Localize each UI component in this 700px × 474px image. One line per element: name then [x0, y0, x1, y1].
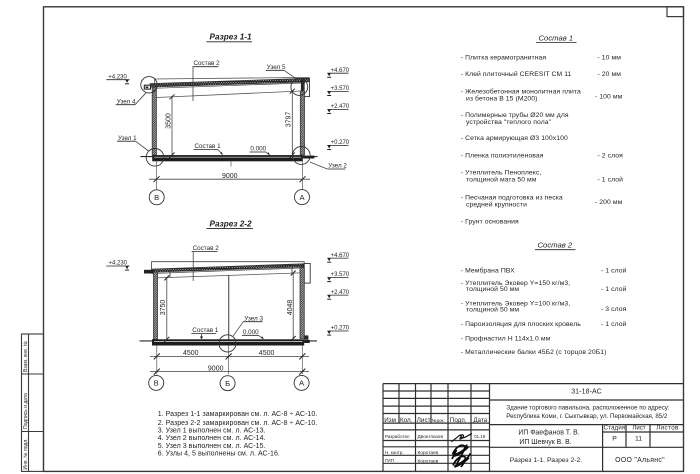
svg-text:- Плитка керамогранитная: - Плитка керамогранитная [461, 54, 547, 61]
svg-text:Изм: Изм [384, 417, 396, 424]
svg-text:толщиной 50 мм: толщиной 50 мм [466, 305, 519, 313]
svg-text:- 100 мм: - 100 мм [595, 94, 623, 101]
svg-text:0.000: 0.000 [250, 146, 266, 153]
svg-text:9000: 9000 [208, 365, 224, 372]
svg-text:4. Узел 2 выполнен см. л. АС-1: 4. Узел 2 выполнен см. л. АС-14. [158, 435, 266, 442]
svg-text:1. Разрез 1-1 замаркирован см.: 1. Разрез 1-1 замаркирован см. л. АС-8 ÷… [158, 411, 318, 418]
svg-text:- Профнастил Н 114x1.0 мм: - Профнастил Н 114x1.0 мм [461, 336, 551, 343]
svg-text:Кол.: Кол. [400, 417, 413, 424]
svg-text:- Металлические балки 45Б2 (с: - Металлические балки 45Б2 (с торцов 20Б… [461, 348, 607, 356]
svg-text:В: В [154, 193, 159, 202]
svg-text:9000: 9000 [222, 173, 238, 180]
svg-text:Двоеглазов: Двоеглазов [418, 434, 444, 440]
svg-text:устройства "теплого пола": устройства "теплого пола" [466, 118, 552, 126]
svg-text:Стадия: Стадия [604, 426, 626, 432]
svg-text:Состав 1: Состав 1 [539, 34, 574, 43]
svg-text:толщиной 50 мм: толщиной 50 мм [466, 285, 519, 293]
svg-text:- Полимерные трубы Ø20 мм для: - Полимерные трубы Ø20 мм для [461, 111, 569, 119]
svg-text:Здание торгового павильона, ра: Здание торгового павильона, расположенно… [506, 405, 669, 412]
svg-text:- 1 слой: - 1 слой [601, 285, 627, 293]
svg-text:Коротаев: Коротаев [418, 458, 439, 464]
svg-text:0.000: 0.000 [243, 329, 259, 336]
svg-text:средней крупности: средней крупности [466, 200, 527, 208]
svg-text:Республика Коми, г. Сыктывкар,: Республика Коми, г. Сыктывкар, ул. Перво… [506, 413, 668, 420]
svg-text:толщиной мата 50 мм: толщиной мата 50 мм [466, 176, 537, 184]
svg-text:ИП Шевчук В. В.: ИП Шевчук В. В. [519, 439, 571, 446]
svg-text:- 3 слоя: - 3 слоя [601, 306, 627, 313]
svg-text:Подпись и дата: Подпись и дата [23, 393, 29, 429]
svg-text:- Клей плиточный CERESIT CM 11: - Клей плиточный CERESIT CM 11 [461, 70, 572, 78]
svg-text:Состав 2: Состав 2 [193, 245, 220, 252]
svg-text:Узел 3: Узел 3 [244, 315, 263, 322]
svg-text:Дата: Дата [473, 417, 487, 424]
svg-text:- Грунт основания: - Грунт основания [461, 219, 519, 226]
svg-text:Подп.: Подп. [450, 417, 467, 424]
svg-text:- Утеплитель Пеноплекс,: - Утеплитель Пеноплекс, [461, 170, 542, 177]
svg-text:Состав 1: Состав 1 [195, 143, 222, 150]
svg-text:Листов: Листов [656, 424, 679, 431]
svg-text:- Железобетонная монолитная п: - Железобетонная монолитная плита [461, 88, 581, 96]
svg-text:Б: Б [225, 379, 230, 388]
svg-text:Лист: Лист [417, 417, 431, 424]
svg-text:- Мембрана ПВХ: - Мембрана ПВХ [461, 266, 515, 274]
svg-text:- Пленка полиэтиленовая: - Пленка полиэтиленовая [461, 152, 544, 159]
svg-text:3500: 3500 [165, 113, 172, 129]
svg-text:- 10 мм: - 10 мм [598, 54, 622, 61]
svg-text:- 20 мм: - 20 мм [598, 71, 622, 78]
svg-text:4048: 4048 [287, 300, 294, 316]
svg-text:ООО "Альянс": ООО "Альянс" [615, 457, 665, 464]
svg-text:3750: 3750 [160, 300, 167, 316]
svg-text:Лист: Лист [632, 426, 645, 432]
svg-text:Н. контр.: Н. контр. [385, 450, 404, 455]
svg-text:Разрез 1-1: Разрез 1-1 [210, 33, 252, 42]
svg-text:Узел 4: Узел 4 [117, 98, 136, 105]
svg-text:- 2 слоя: - 2 слоя [598, 152, 624, 159]
svg-text:01.19: 01.19 [474, 434, 486, 439]
svg-text:Разрез 1-1. Разрез 2-2.: Разрез 1-1. Разрез 2-2. [510, 457, 583, 464]
svg-text:Взам. инв. №: Взам. инв. № [23, 341, 29, 372]
svg-text:5. Узел 3 выполнен см. л. АС-1: 5. Узел 3 выполнен см. л. АС-15. [158, 443, 266, 450]
svg-text:из бетона В 15 (М200): из бетона В 15 (М200) [466, 95, 538, 103]
svg-text:11: 11 [635, 436, 642, 443]
svg-text:- Сетка армирующая Ø3 100x100: - Сетка армирующая Ø3 100x100 [461, 135, 568, 142]
svg-text:Узел 1: Узел 1 [118, 135, 137, 142]
svg-text:- 1 слой: - 1 слой [601, 320, 627, 328]
svg-text:6. Узлы 4, 5 выполнены см. л.: 6. Узлы 4, 5 выполнены см. л. АС-16. [158, 450, 280, 457]
svg-text:Узел 2: Узел 2 [328, 163, 347, 170]
svg-text:В: В [154, 379, 159, 388]
svg-text:Узел 5: Узел 5 [267, 64, 286, 71]
svg-text:ГИП: ГИП [385, 458, 394, 463]
svg-text:2. Разрез 2-2 замаркирован см.: 2. Разрез 2-2 замаркирован см. л. АС-8 ÷… [158, 420, 318, 427]
svg-text:31-18-АС: 31-18-АС [571, 389, 602, 396]
svg-text:4500: 4500 [183, 350, 199, 357]
svg-text:ИП Фаефанов Т. В.: ИП Фаефанов Т. В. [518, 429, 579, 436]
svg-text:- 1 слой: - 1 слой [598, 176, 624, 184]
svg-text:Разрез 2-2: Разрез 2-2 [210, 219, 252, 228]
svg-text:- 1 слой: - 1 слой [601, 266, 627, 274]
svg-text:Состав 1: Состав 1 [192, 327, 219, 334]
svg-text:№док.: №док. [432, 418, 445, 423]
svg-text:Р: Р [612, 436, 617, 443]
svg-text:3797: 3797 [286, 112, 293, 128]
svg-text:Состав 2: Состав 2 [538, 240, 573, 249]
svg-text:Разработал: Разработал [385, 434, 410, 439]
svg-text:3. Узел 1 выполнен см. л. АС-1: 3. Узел 1 выполнен см. л. АС-13. [158, 428, 266, 435]
svg-text:- Песчаная подготовка из песка: - Песчаная подготовка из песка [461, 194, 563, 201]
svg-text:4500: 4500 [259, 350, 275, 357]
svg-text:Инв. № подл.: Инв. № подл. [23, 438, 29, 469]
svg-text:- 200 мм: - 200 мм [595, 199, 623, 206]
svg-text:- Пароизоляция для плоских кро: - Пароизоляция для плоских кровель [461, 321, 581, 328]
svg-text:Коротаев: Коротаев [418, 450, 439, 456]
svg-text:Состав 2: Состав 2 [194, 60, 221, 67]
